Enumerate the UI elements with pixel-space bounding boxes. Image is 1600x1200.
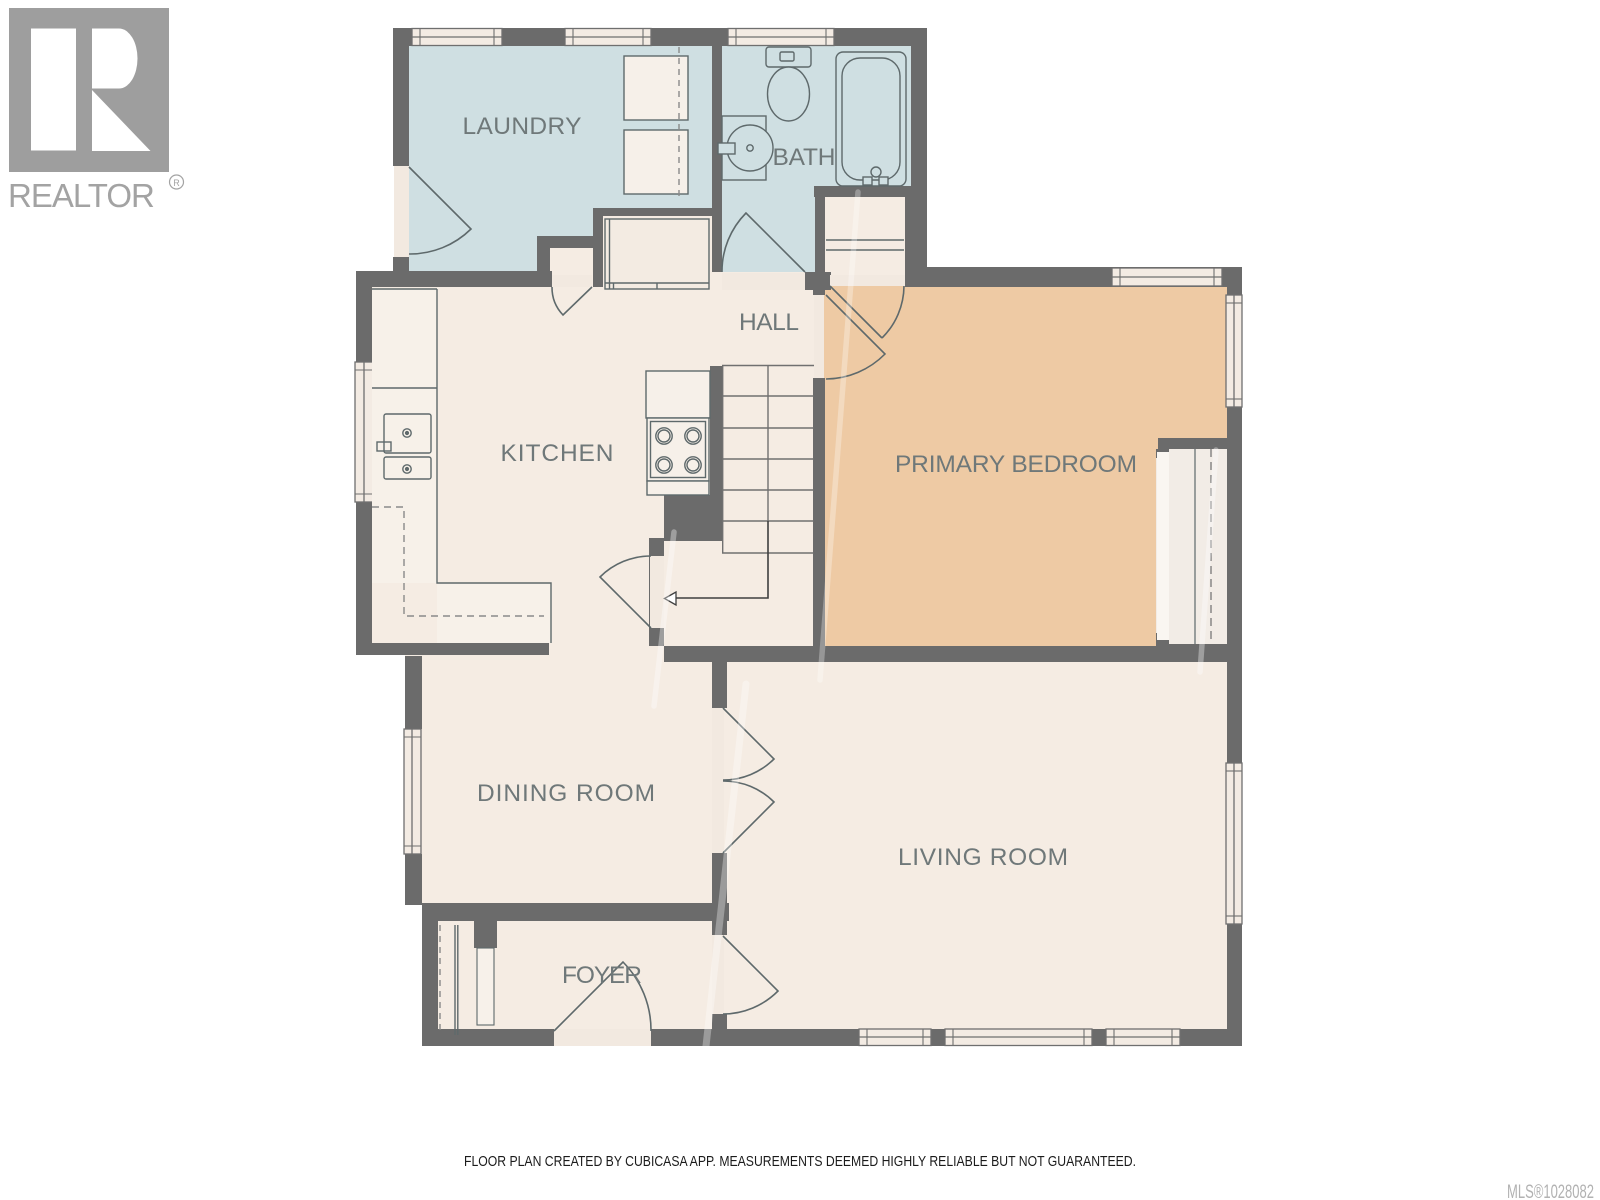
- svg-text:LIVING ROOM: LIVING ROOM: [898, 844, 1068, 871]
- svg-text:HALL: HALL: [739, 309, 799, 336]
- svg-text:KITCHEN: KITCHEN: [501, 440, 614, 467]
- svg-text:DINING ROOM: DINING ROOM: [477, 780, 655, 807]
- svg-text:FOYER: FOYER: [562, 962, 642, 989]
- svg-text:LAUNDRY: LAUNDRY: [463, 113, 582, 140]
- svg-text:PRIMARY BEDROOM: PRIMARY BEDROOM: [895, 451, 1137, 478]
- svg-text:BATH: BATH: [773, 144, 836, 171]
- svg-text:R: R: [173, 178, 180, 188]
- svg-text:FLOOR PLAN CREATED BY CUBICASA: FLOOR PLAN CREATED BY CUBICASA APP. MEAS…: [464, 1153, 1136, 1170]
- svg-text:MLS®1028082: MLS®1028082: [1507, 1182, 1594, 1200]
- svg-text:REALTOR: REALTOR: [8, 177, 154, 214]
